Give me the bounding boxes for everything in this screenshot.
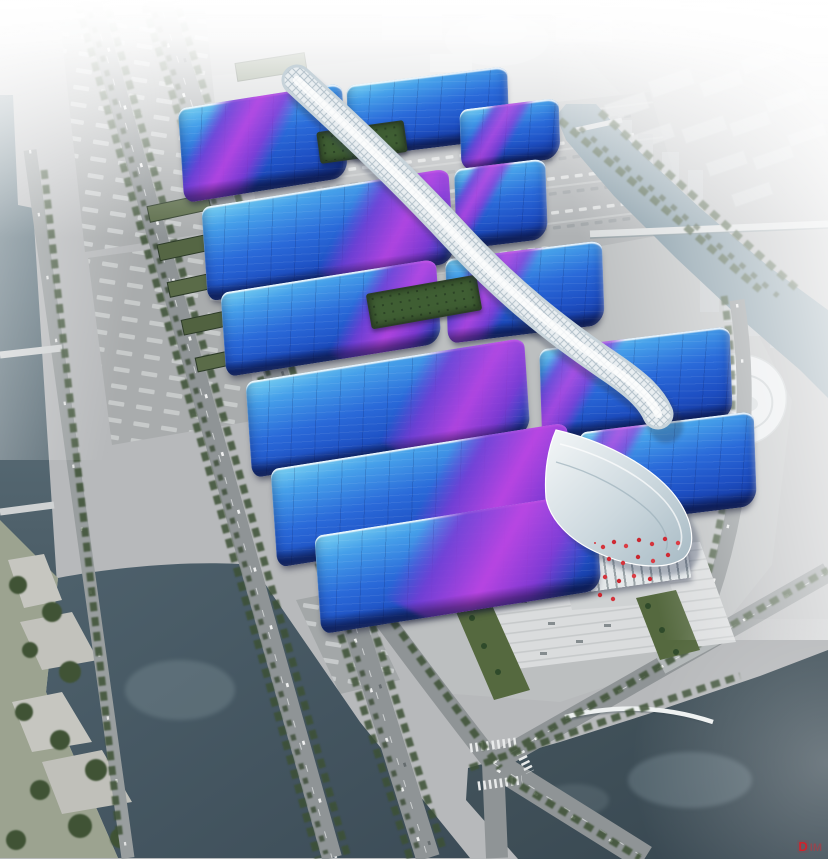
watermark: D IM [797,840,822,854]
watermark-primary: D [797,840,808,853]
central-corridor [297,80,666,426]
flag-cluster [594,542,596,544]
aerial-rendering: D IM [0,0,828,859]
corridor-layer [0,0,828,859]
watermark-secondary: IM [810,843,822,854]
entrance-wave-canopy [545,430,699,576]
